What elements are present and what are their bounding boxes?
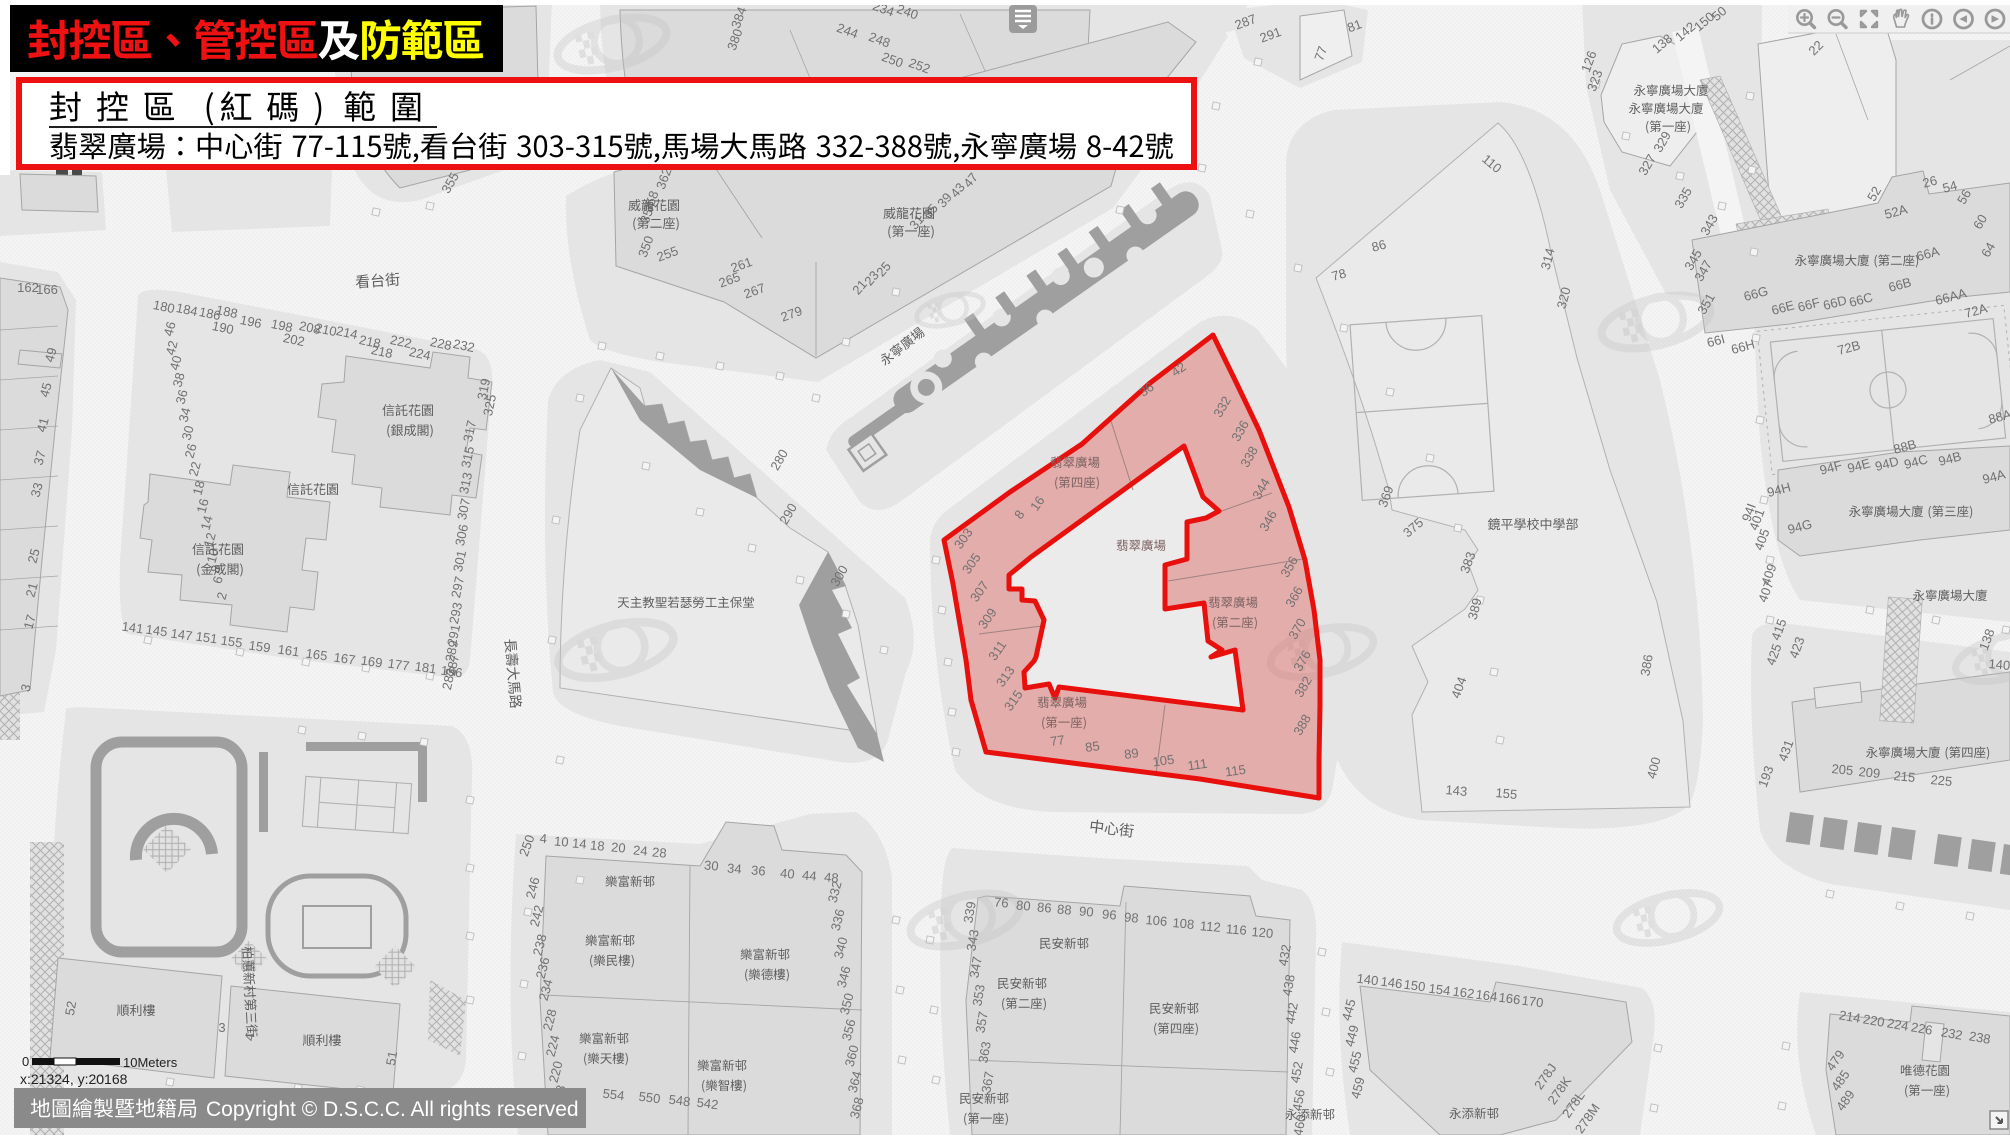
svg-text:20: 20 [611,839,627,855]
svg-text:51: 51 [383,1050,400,1067]
svg-text:205: 205 [1831,761,1854,778]
svg-text:154: 154 [1428,981,1451,999]
svg-text:52: 52 [62,1000,79,1017]
svg-text:150: 150 [1403,977,1426,995]
svg-text:548: 548 [668,1092,691,1110]
svg-text:170: 170 [1521,993,1544,1011]
svg-text:Copyright © D.S.C.C. All right: Copyright © D.S.C.C. All rights reserved [206,1098,579,1121]
svg-text:155: 155 [1495,785,1518,802]
svg-text:24: 24 [633,842,649,858]
svg-text:3: 3 [218,1020,225,1035]
svg-text:85: 85 [1084,738,1100,755]
svg-text:169: 169 [360,653,384,671]
svg-text:116: 116 [1225,921,1247,938]
svg-text:165: 165 [305,646,329,664]
svg-text:120: 120 [1251,924,1274,941]
svg-text:215: 215 [1893,768,1916,785]
svg-text:44: 44 [802,867,818,883]
svg-text:10: 10 [554,833,570,849]
svg-text:36: 36 [751,862,767,878]
svg-text:164: 164 [1475,987,1498,1005]
svg-text:146: 146 [1380,974,1403,992]
svg-text:181: 181 [414,659,438,677]
svg-text:86: 86 [1037,899,1053,915]
svg-text:542: 542 [696,1095,719,1113]
svg-text:34: 34 [727,860,743,876]
svg-text:40: 40 [780,865,796,881]
svg-text:18: 18 [590,837,606,853]
svg-text:141: 141 [121,619,145,637]
svg-text:108: 108 [1172,915,1195,932]
svg-text:111: 111 [1187,756,1209,774]
svg-text:105: 105 [1152,752,1176,770]
svg-text:28: 28 [652,844,668,860]
svg-text:115: 115 [1224,762,1247,780]
svg-text:4: 4 [539,831,548,847]
svg-text:77: 77 [1049,732,1065,749]
svg-text:140: 140 [1356,971,1379,989]
svg-text:147: 147 [170,626,194,644]
svg-text:550: 550 [638,1089,661,1107]
svg-text:209: 209 [1858,764,1881,781]
svg-text:96: 96 [1102,906,1118,922]
svg-text:112: 112 [1199,918,1221,935]
svg-text:98: 98 [1124,909,1140,925]
svg-text:14: 14 [572,835,588,851]
svg-text:140: 140 [1988,656,2010,673]
svg-text:145: 145 [145,622,169,640]
svg-text:151: 151 [195,629,219,647]
svg-text:90: 90 [1079,903,1095,919]
svg-text:159: 159 [248,638,272,656]
svg-text:106: 106 [1145,912,1168,929]
svg-text:143: 143 [1445,782,1468,799]
svg-text:155: 155 [220,633,244,651]
svg-text:162: 162 [1452,984,1475,1002]
svg-text:80: 80 [1016,897,1032,913]
svg-text:225: 225 [1930,772,1953,789]
svg-text:554: 554 [602,1086,625,1104]
svg-text:0: 0 [22,1054,29,1069]
svg-text:177: 177 [387,656,411,674]
svg-text:88: 88 [1057,901,1073,917]
svg-text:10Meters: 10Meters [123,1055,178,1070]
svg-text:167: 167 [333,650,357,668]
svg-text:76: 76 [994,894,1010,910]
svg-text:166: 166 [1498,990,1521,1008]
svg-text:30: 30 [704,857,720,873]
svg-text:161: 161 [277,642,301,660]
svg-text:89: 89 [1123,745,1139,762]
svg-text:x:21324, y:20168: x:21324, y:20168 [20,1071,128,1087]
svg-text:166: 166 [36,282,58,297]
